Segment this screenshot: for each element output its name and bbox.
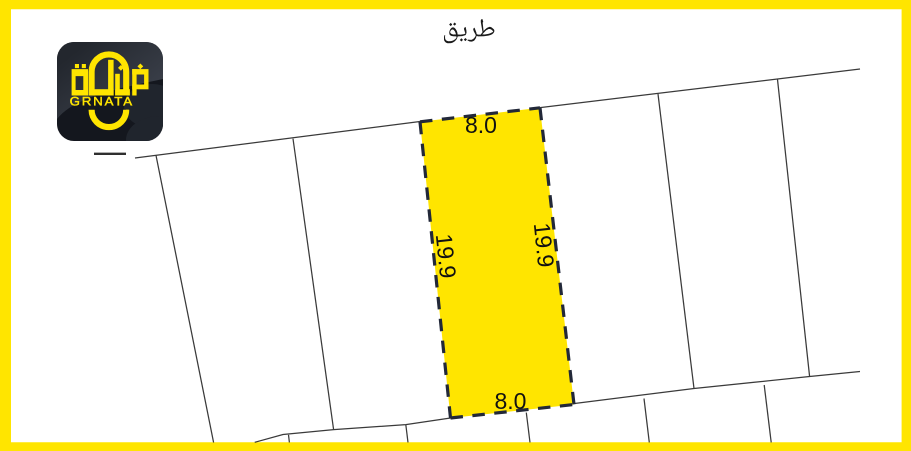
svg-text:19.9: 19.9: [529, 221, 560, 268]
svg-text:8.0: 8.0: [465, 112, 497, 138]
svg-text:19.9: 19.9: [431, 232, 462, 279]
svg-text:8.0: 8.0: [495, 388, 527, 414]
